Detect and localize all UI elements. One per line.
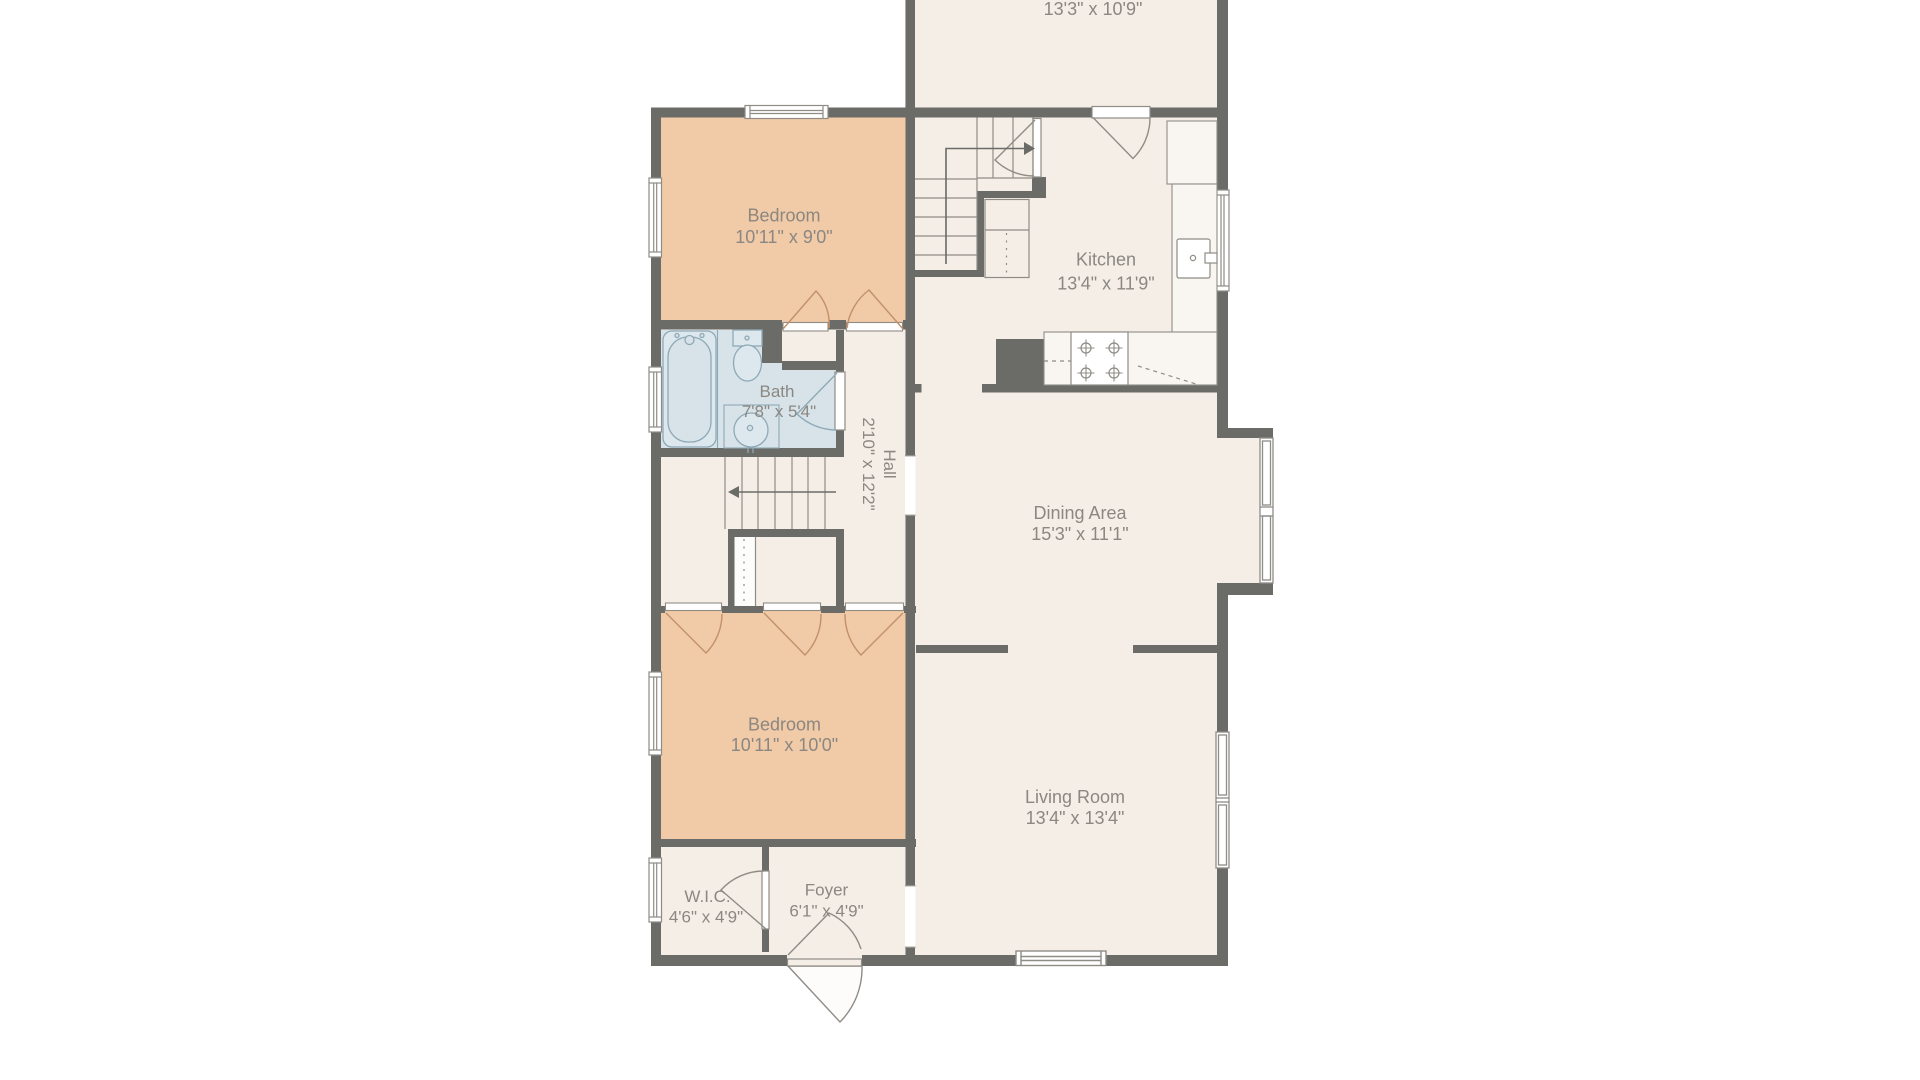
svg-text:Bedroom: Bedroom <box>748 715 821 735</box>
svg-text:6'1" x 4'9": 6'1" x 4'9" <box>789 902 863 921</box>
svg-text:Kitchen: Kitchen <box>1076 250 1136 270</box>
svg-text:W.I.C.: W.I.C. <box>684 887 730 906</box>
svg-text:Bath: Bath <box>760 382 795 401</box>
svg-text:Dining Area: Dining Area <box>1033 503 1127 523</box>
svg-text:10'11" x 10'0": 10'11" x 10'0" <box>731 735 838 755</box>
svg-text:Foyer: Foyer <box>805 881 849 900</box>
svg-text:4'6" x 4'9": 4'6" x 4'9" <box>669 908 743 927</box>
svg-text:10'11" x 9'0": 10'11" x 9'0" <box>735 227 832 247</box>
svg-text:15'3" x 11'1": 15'3" x 11'1" <box>1031 524 1128 544</box>
svg-text:Hall: Hall <box>880 449 899 478</box>
svg-text:Bedroom: Bedroom <box>747 206 820 226</box>
svg-text:13'4" x 11'9": 13'4" x 11'9" <box>1057 274 1154 294</box>
svg-text:13'4" x 13'4": 13'4" x 13'4" <box>1026 808 1125 828</box>
svg-text:7'8" x 5'4": 7'8" x 5'4" <box>742 402 816 421</box>
svg-text:Living Room: Living Room <box>1025 787 1125 807</box>
svg-text:2'10" x 12'2": 2'10" x 12'2" <box>859 417 878 510</box>
svg-text:13'3" x 10'9": 13'3" x 10'9" <box>1044 0 1143 19</box>
